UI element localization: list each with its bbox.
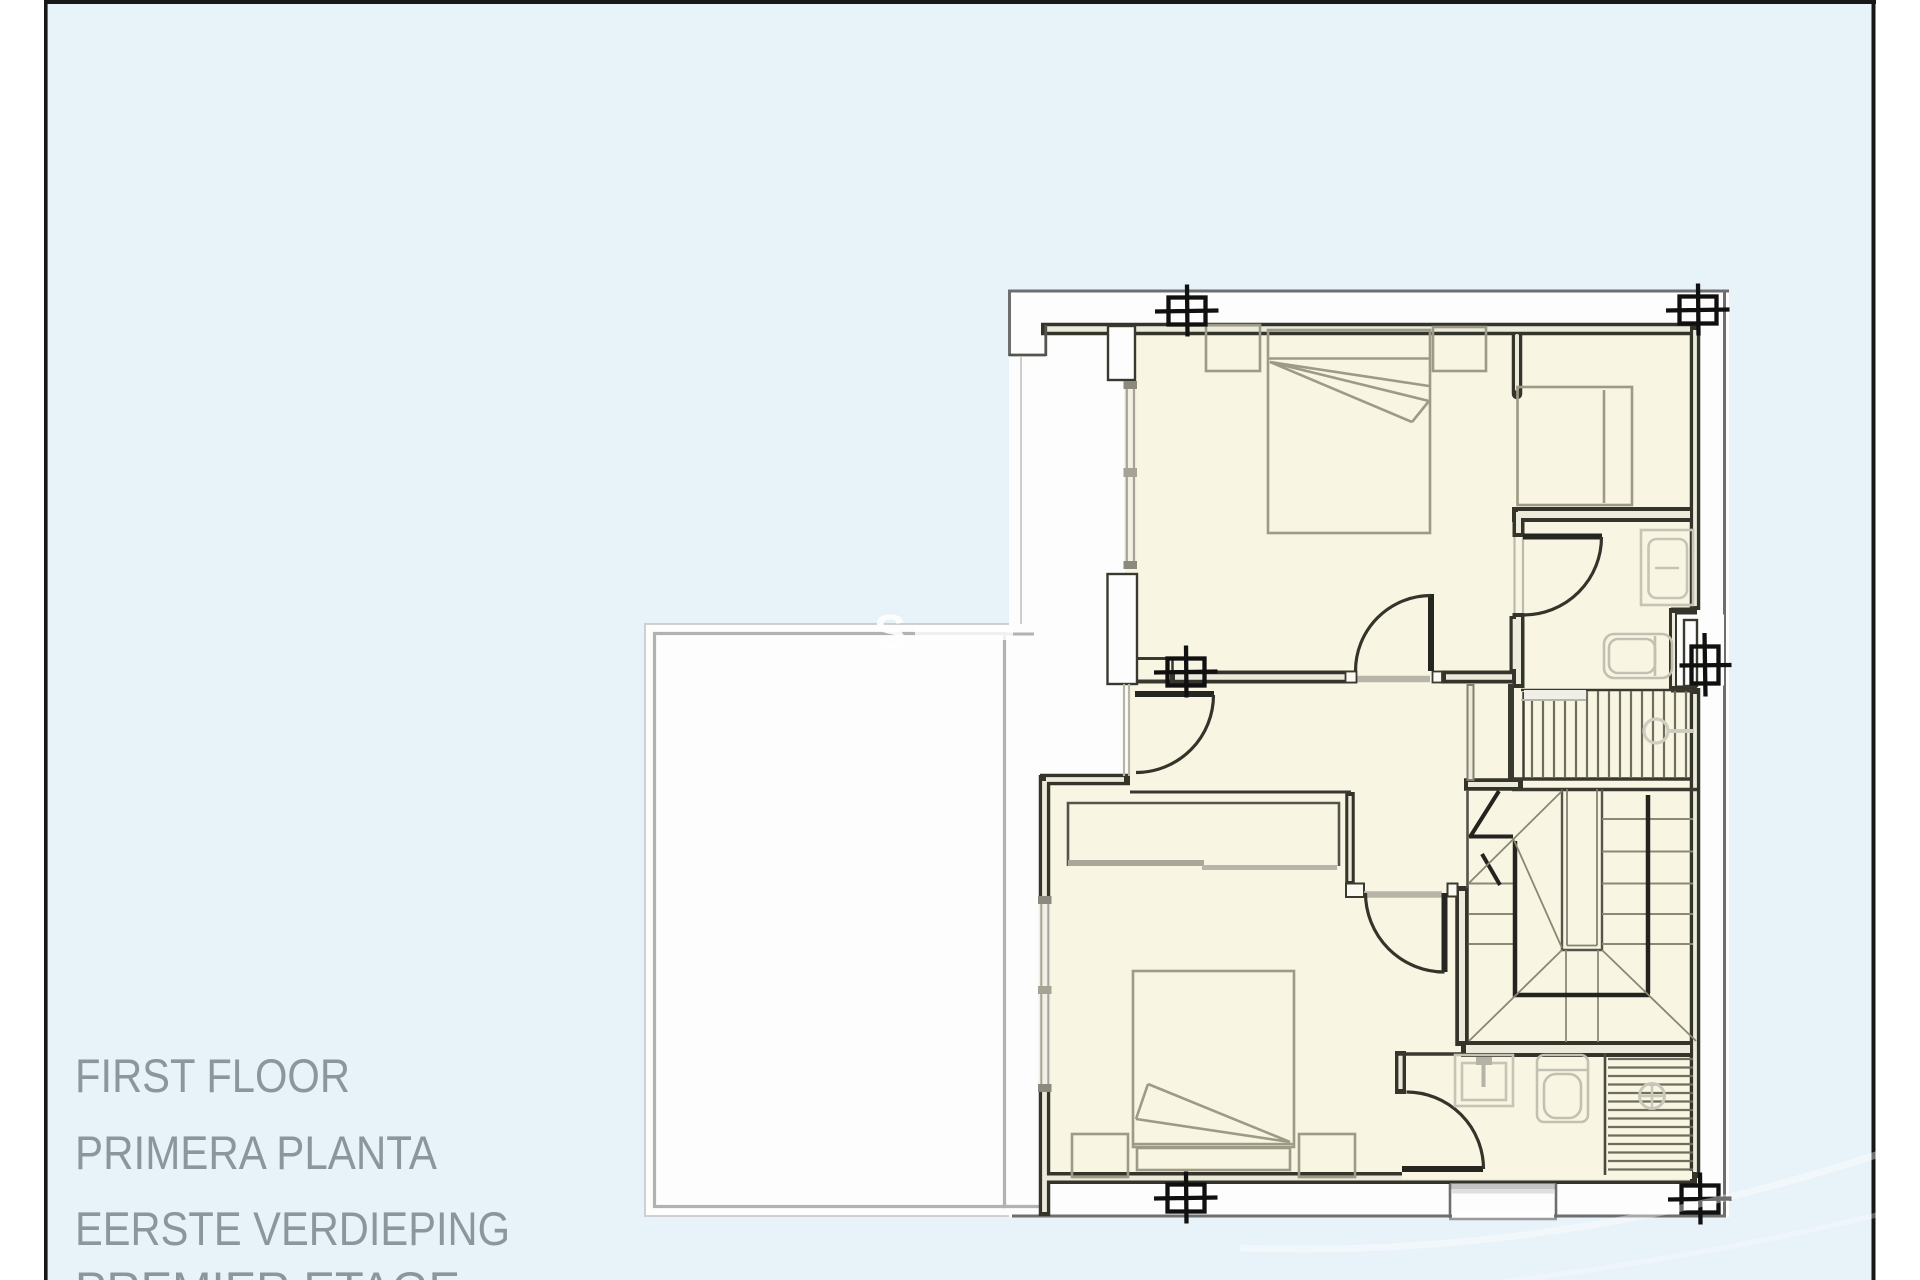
svg-text:FIRST FLOOR: FIRST FLOOR: [75, 1049, 350, 1102]
svg-text:PRIMERA PLANTA: PRIMERA PLANTA: [75, 1126, 438, 1179]
svg-text:EERSTE VERDIEPING: EERSTE VERDIEPING: [75, 1202, 510, 1255]
svg-text:PREMIER ETAGE: PREMIER ETAGE: [75, 1262, 460, 1280]
svg-text:S: S: [874, 606, 906, 659]
